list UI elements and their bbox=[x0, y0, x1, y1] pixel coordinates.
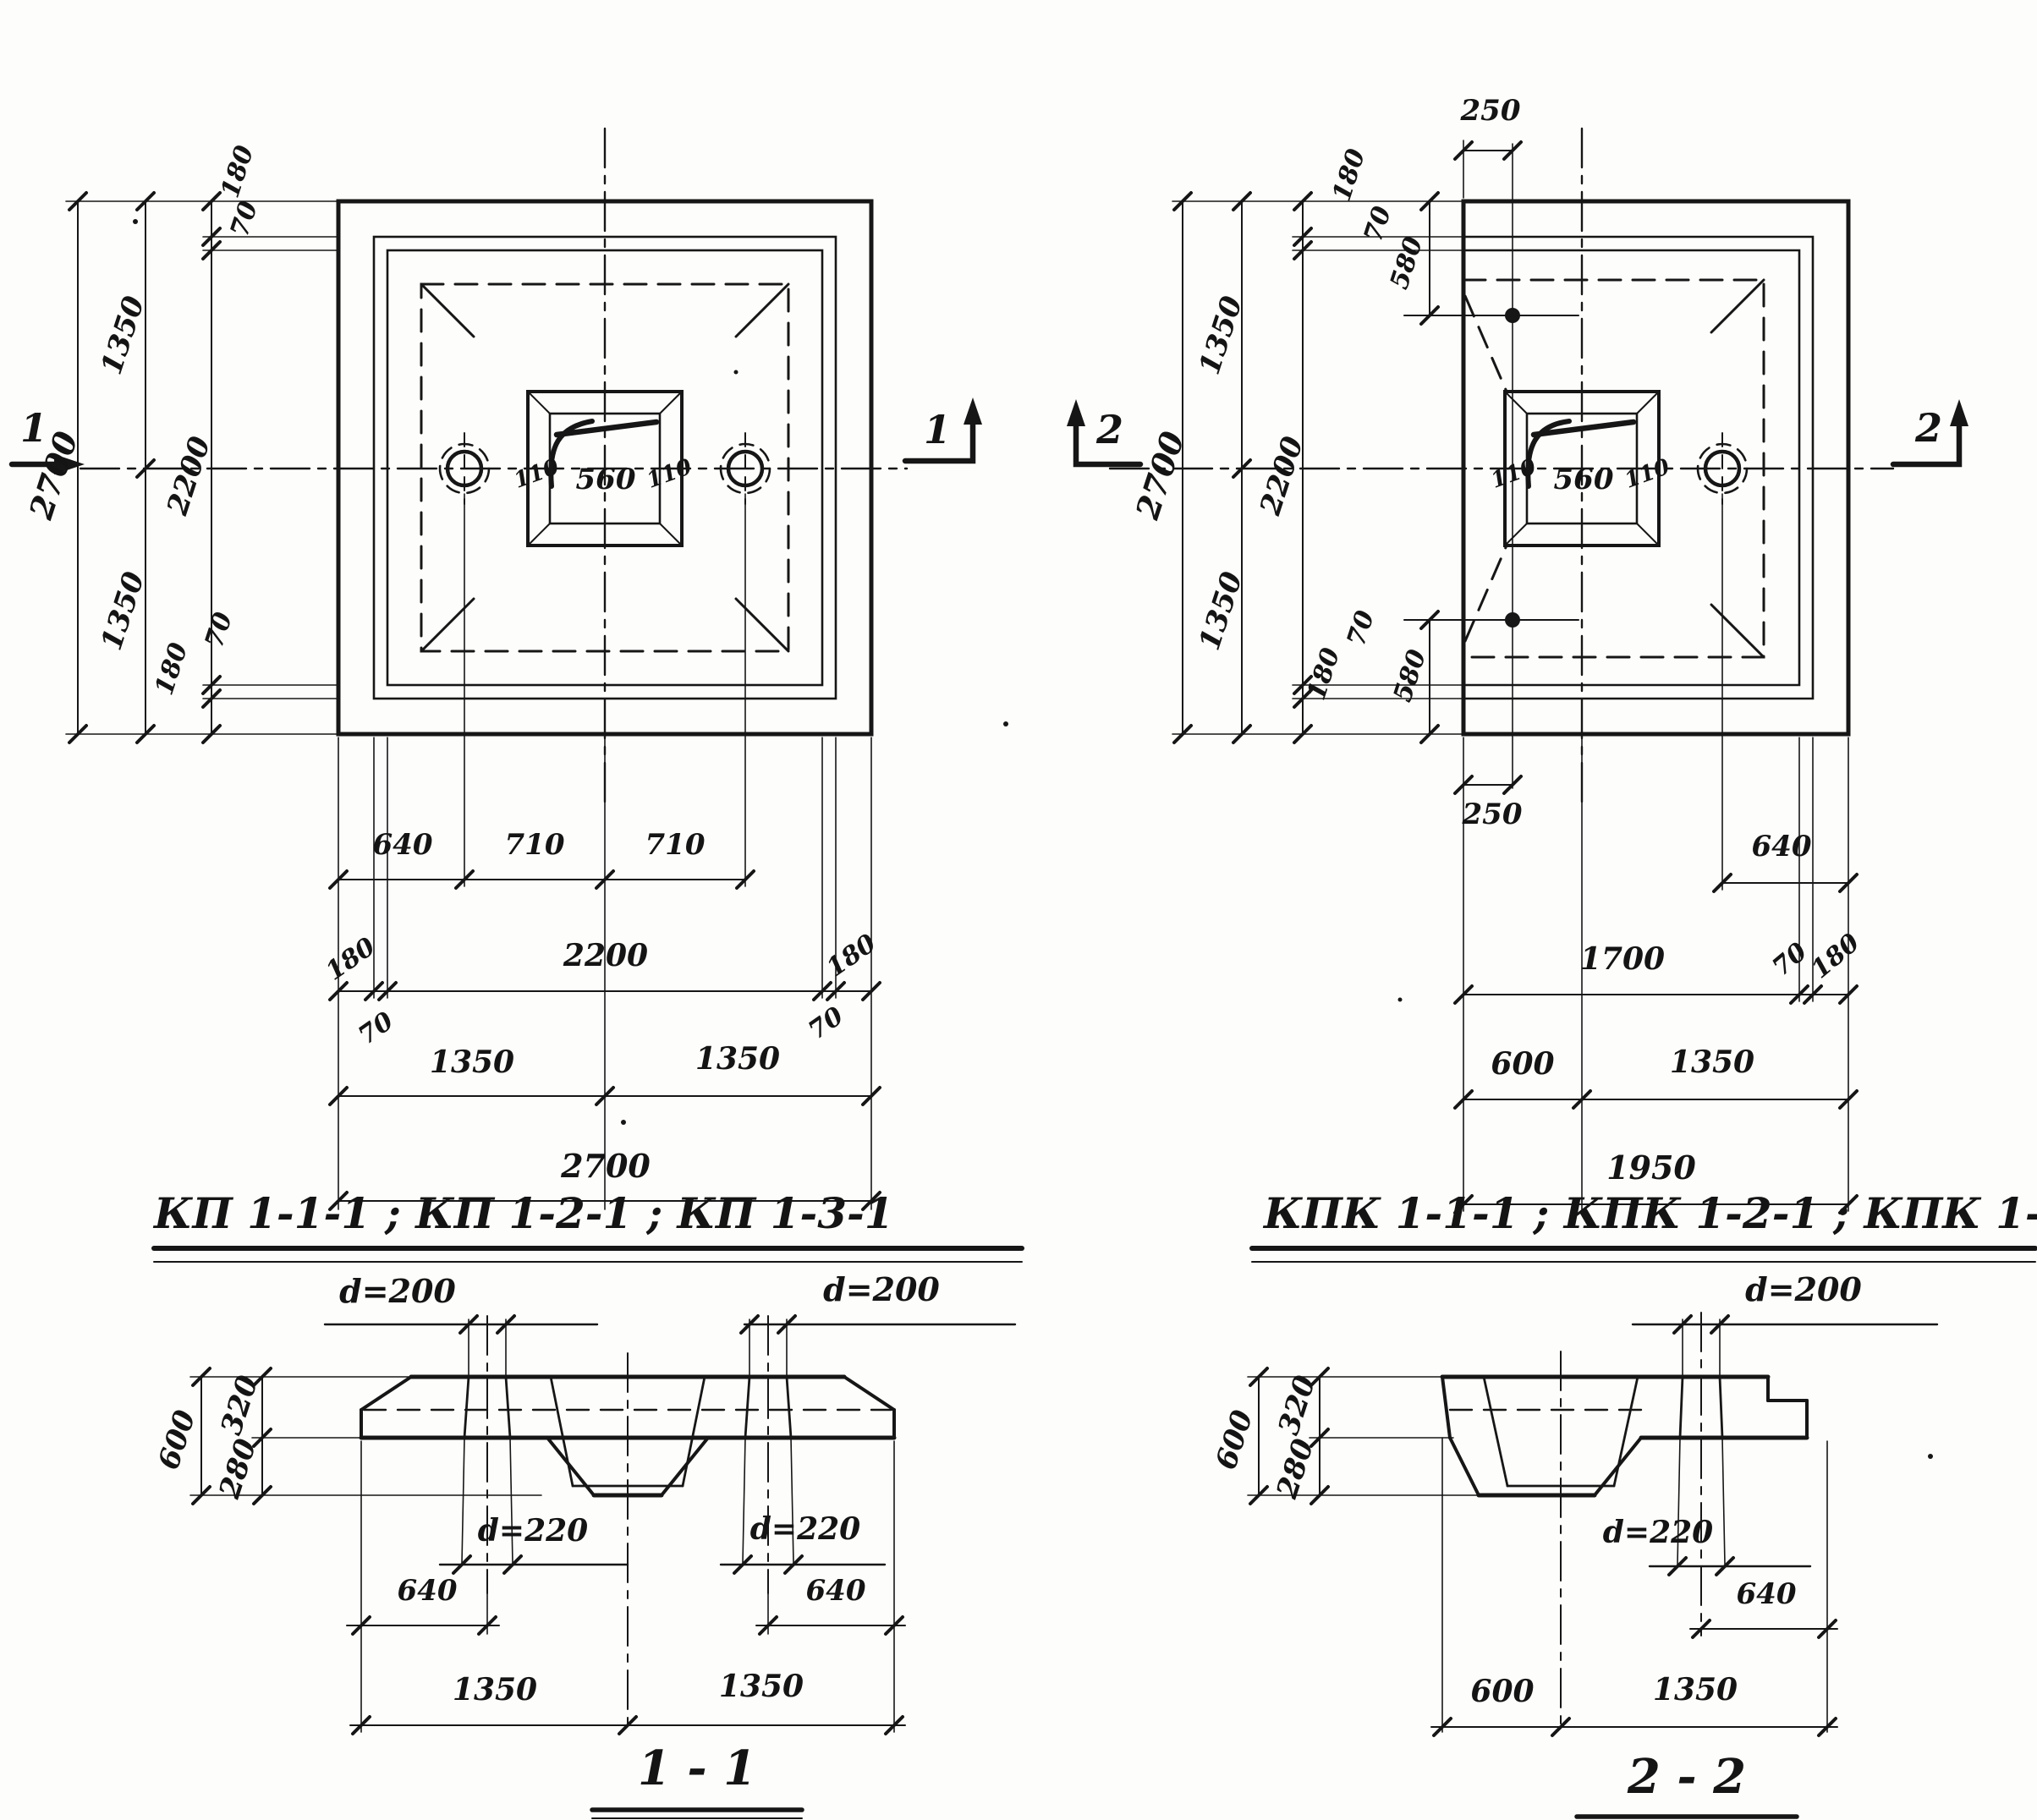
dim-1950: 1950 bbox=[1606, 1148, 1696, 1187]
pyramid-corner-line bbox=[736, 599, 788, 651]
cup-bevel bbox=[660, 524, 682, 545]
pyramid-corner-line bbox=[736, 284, 788, 337]
dim-70-top: 70 bbox=[1359, 203, 1397, 246]
dim-70-h: 70 bbox=[1767, 937, 1814, 983]
dim-600-h: 600 bbox=[1470, 1674, 1534, 1709]
pyramid-cut-line bbox=[1465, 296, 1507, 392]
dim-70-h-right: 70 bbox=[803, 1001, 848, 1046]
pyramid-corner-line bbox=[1711, 280, 1764, 332]
pyramid-corner-line bbox=[1711, 605, 1764, 657]
dim-70-top: 70 bbox=[225, 198, 264, 241]
dim-640: 640 bbox=[1752, 830, 1812, 863]
dim-70-bottom: 70 bbox=[200, 609, 239, 652]
dim-2200-h: 2200 bbox=[563, 938, 648, 973]
section-2-caption: 2 - 2 bbox=[1627, 1749, 1746, 1805]
right-plan-bottom-dimensions: 250 640 1700 70 180 600 1350 1950 bbox=[1455, 494, 1865, 1213]
dim-1350-bottom: 1350 bbox=[95, 567, 151, 655]
dim-280: 280 bbox=[212, 1434, 263, 1503]
dim-250-bottom: 250 bbox=[1462, 798, 1523, 831]
cup-dim-560: 560 bbox=[576, 463, 636, 496]
section-marker-2-left: 2 bbox=[1095, 407, 1123, 452]
dim-180-h-left: 180 bbox=[321, 932, 381, 987]
cup-dim-110-right: 110 bbox=[644, 454, 695, 494]
dim-320: 320 bbox=[215, 1371, 266, 1439]
cup-dim-110-left: 110 bbox=[1488, 454, 1540, 494]
section-2-title: КПК 1-1-1 ; КПК 1-2-1 ; КПК 1-3-1 bbox=[1262, 1188, 2037, 1238]
blueprint-canvas: 110 560 110 1 1 2700 1350 1350 2200 180 … bbox=[0, 0, 2037, 1820]
pyramid-corner-line bbox=[421, 599, 474, 651]
dim-1700: 1700 bbox=[1580, 941, 1665, 977]
dim-2200-vertical: 2200 bbox=[161, 432, 218, 520]
section-1-1: КП 1-1-1 ; КП 1-2-1 ; КП 1-3-1 bbox=[152, 1188, 1022, 1818]
cup-bevel bbox=[1505, 524, 1527, 545]
dim-640: 640 bbox=[1737, 1577, 1797, 1611]
cup-bevel bbox=[660, 392, 682, 414]
dim-1350-h-right: 1350 bbox=[695, 1041, 780, 1077]
section-1-caption: 1 - 1 bbox=[638, 1741, 756, 1796]
cup-bevel bbox=[528, 392, 550, 414]
section-arrow-up-icon bbox=[1950, 399, 1968, 426]
dim-640-left: 640 bbox=[398, 1574, 458, 1608]
dim-280: 280 bbox=[1270, 1434, 1320, 1503]
dim-1350: 1350 bbox=[1653, 1672, 1738, 1708]
dim-180-top: 180 bbox=[1327, 145, 1372, 205]
section-arrow-up-icon bbox=[964, 397, 982, 425]
drawing-sheet: 110 560 110 1 1 2700 1350 1350 2200 180 … bbox=[0, 0, 2037, 1820]
section-arrow-up-icon bbox=[1067, 399, 1085, 426]
pyramid-corner-line bbox=[421, 284, 474, 337]
dim-250-top: 250 bbox=[1460, 94, 1521, 128]
dim-180-h: 180 bbox=[1806, 928, 1866, 984]
right-plan-view: 110 560 110 bbox=[1110, 129, 1893, 805]
section-1-title: КП 1-1-1 ; КП 1-2-1 ; КП 1-3-1 bbox=[152, 1188, 894, 1238]
dim-710-left: 710 bbox=[505, 828, 565, 862]
dim-1350-right: 1350 bbox=[719, 1669, 804, 1704]
dim-600: 600 bbox=[152, 1406, 203, 1473]
dim-600: 600 bbox=[1491, 1046, 1554, 1082]
dim-180-bottom: 180 bbox=[1302, 644, 1347, 704]
cup-dim-110-left: 110 bbox=[511, 454, 563, 494]
dim-70-bottom: 70 bbox=[1342, 607, 1381, 650]
dim-180-bottom: 180 bbox=[150, 639, 195, 699]
section-marker-1-right: 1 bbox=[924, 407, 951, 452]
dim-580-bottom: 580 bbox=[1388, 646, 1433, 705]
pyramid-cut-line bbox=[1465, 545, 1507, 641]
section-2-markers: 2 2 bbox=[1067, 399, 1968, 464]
dim-70-h-left: 70 bbox=[353, 1006, 398, 1051]
section-marker-2-right: 2 bbox=[1914, 405, 1942, 451]
dim-180-top: 180 bbox=[216, 142, 261, 201]
dim-1350-h-left: 1350 bbox=[430, 1044, 514, 1080]
section-2-2: КПК 1-1-1 ; КПК 1-2-1 ; КПК 1-3-1 d=200 … bbox=[1210, 1188, 2037, 1817]
cup-bevel bbox=[1637, 524, 1659, 545]
dim-d200-right: d=200 bbox=[823, 1270, 940, 1308]
cup-bevel bbox=[1637, 392, 1659, 414]
dim-d200-left: d=200 bbox=[339, 1272, 456, 1310]
dim-1350-left: 1350 bbox=[453, 1672, 537, 1708]
dim-640-right: 640 bbox=[806, 1574, 866, 1608]
dim-d220-right: d=220 bbox=[750, 1511, 860, 1547]
dim-2700-h: 2700 bbox=[560, 1147, 651, 1185]
dim-320: 320 bbox=[1272, 1371, 1323, 1439]
dim-d220-left: d=220 bbox=[478, 1513, 588, 1549]
dim-1350-h: 1350 bbox=[1670, 1044, 1754, 1080]
dim-1350-top: 1350 bbox=[95, 292, 151, 379]
cup-dim-110-right: 110 bbox=[1622, 454, 1673, 494]
cup-dim-560: 560 bbox=[1554, 463, 1614, 496]
left-plan-bottom-dimensions: 640 710 710 180 2200 180 70 70 1350 1350… bbox=[321, 494, 881, 1209]
cup-bevel bbox=[528, 524, 550, 545]
dim-580-top: 580 bbox=[1385, 233, 1430, 293]
left-plan-left-dimensions: 2700 1350 1350 2200 180 70 70 180 bbox=[21, 142, 338, 743]
dim-d220: d=220 bbox=[1603, 1515, 1713, 1550]
dim-600-v: 600 bbox=[1210, 1406, 1260, 1473]
cup-bevel bbox=[1505, 392, 1527, 414]
dim-180-h-right: 180 bbox=[821, 929, 881, 984]
dim-640: 640 bbox=[373, 828, 433, 862]
dim-710-right: 710 bbox=[645, 828, 706, 862]
dim-d200: d=200 bbox=[1745, 1270, 1862, 1308]
